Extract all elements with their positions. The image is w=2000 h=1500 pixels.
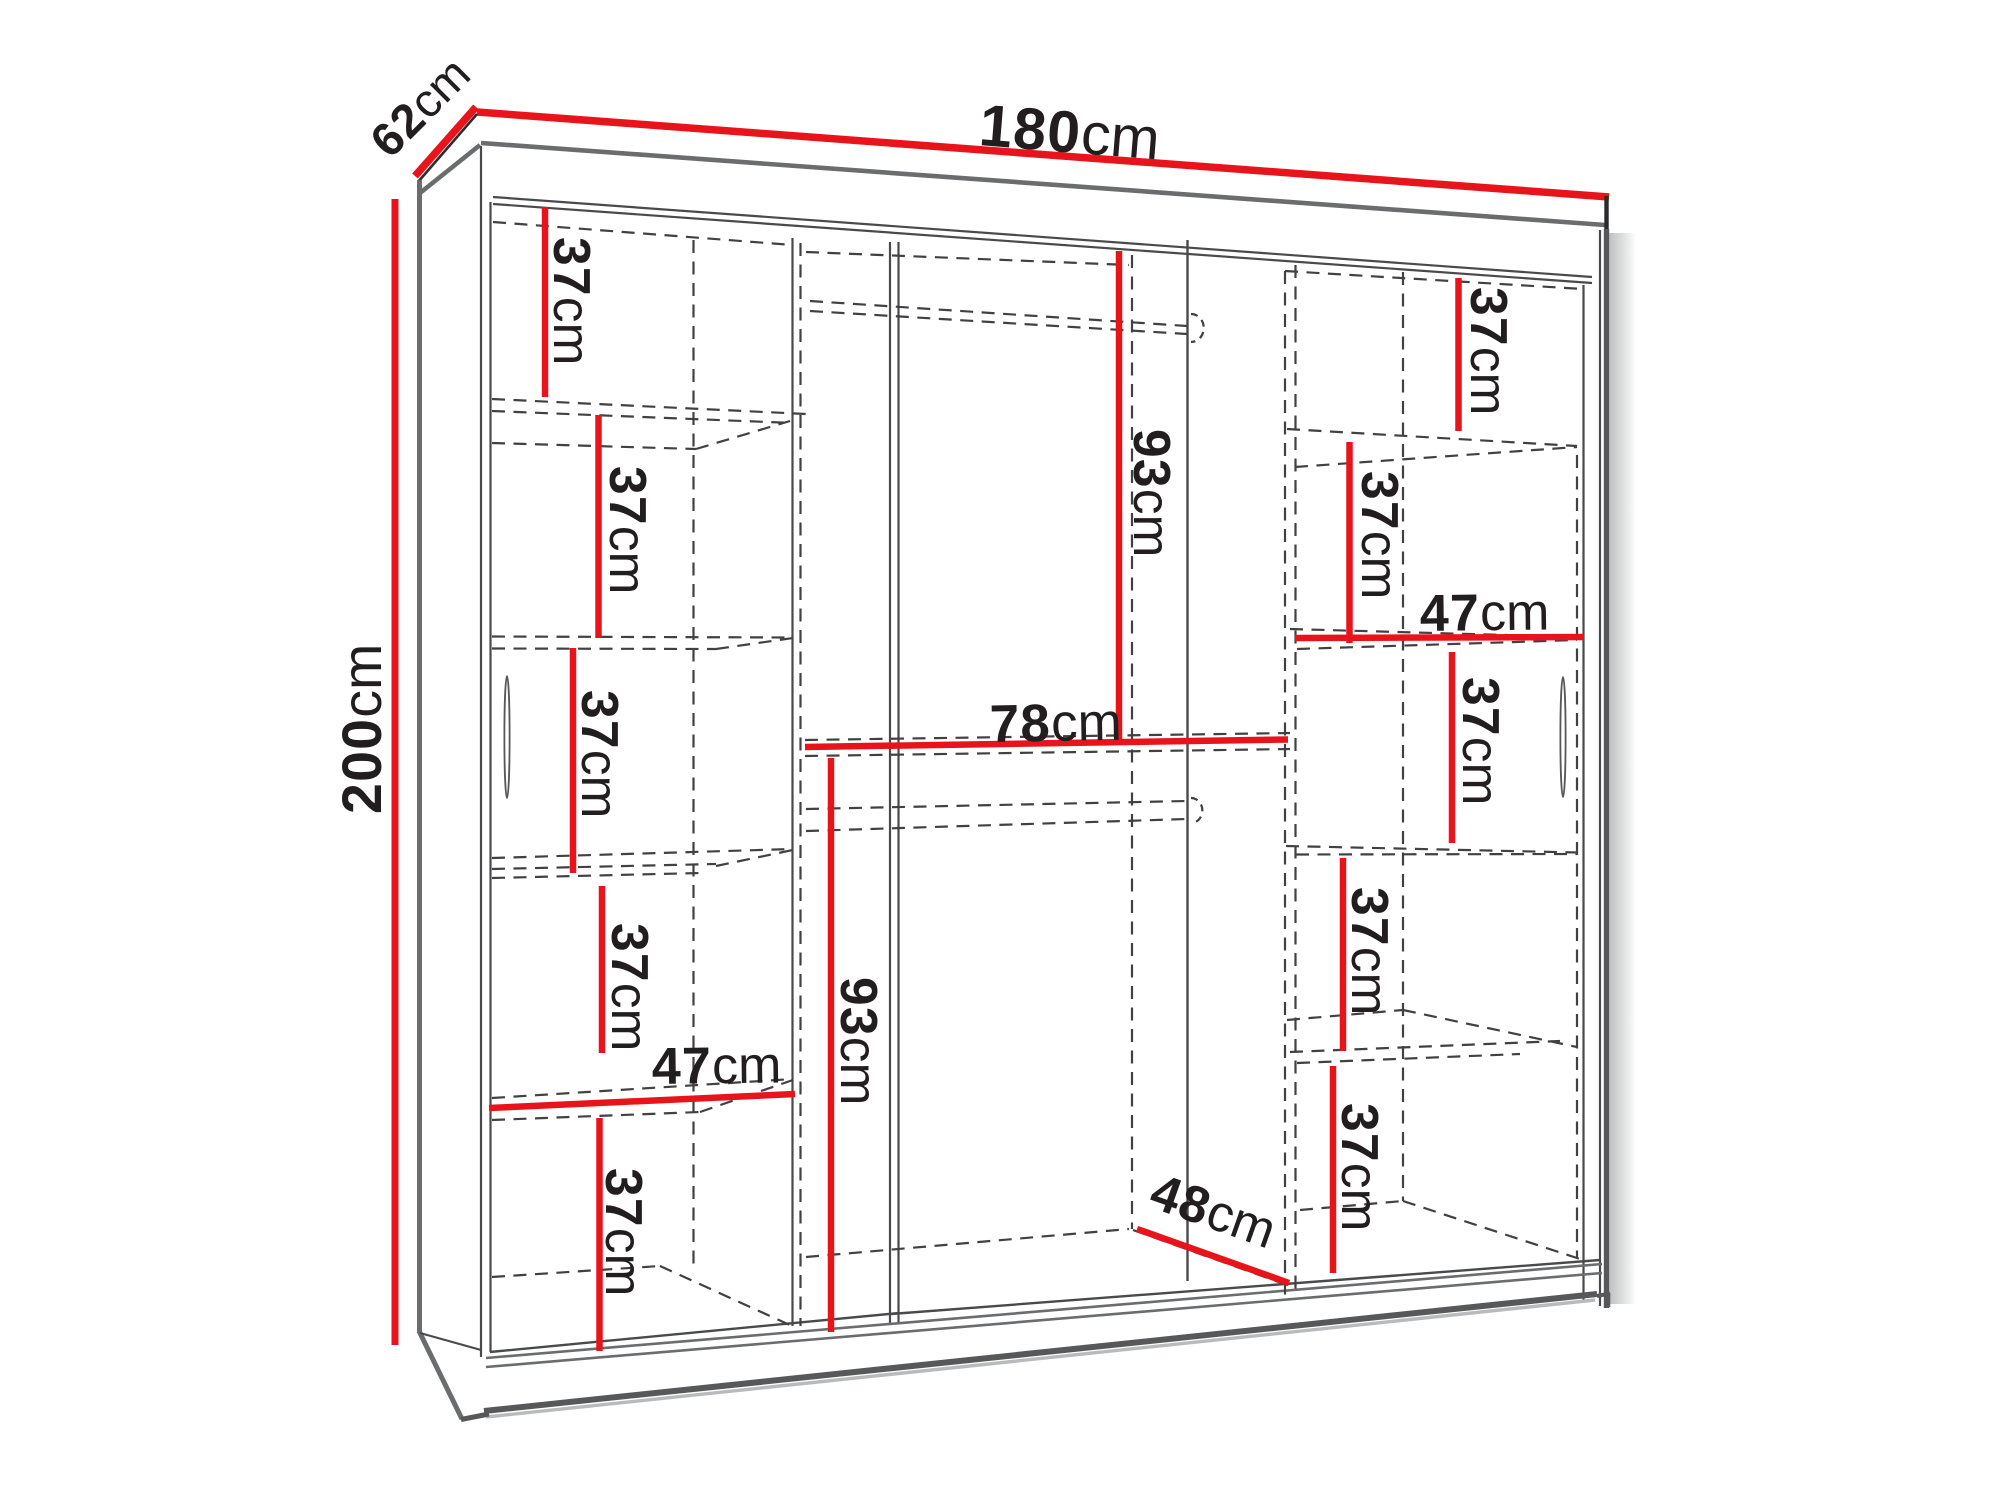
svg-text:37cm: 37cm (601, 923, 659, 1051)
svg-text:93cm: 93cm (830, 977, 888, 1105)
svg-text:37cm: 37cm (543, 237, 601, 365)
svg-text:47cm: 47cm (1419, 583, 1549, 643)
svg-text:93cm: 93cm (1123, 429, 1181, 557)
svg-text:37cm: 37cm (1331, 1103, 1389, 1231)
svg-text:200cm: 200cm (331, 644, 393, 814)
svg-text:37cm: 37cm (1452, 677, 1510, 805)
svg-text:47cm: 47cm (651, 1036, 781, 1096)
svg-text:37cm: 37cm (571, 690, 629, 818)
svg-text:37cm: 37cm (1341, 887, 1399, 1015)
svg-text:78cm: 78cm (989, 693, 1122, 754)
svg-text:37cm: 37cm (595, 1168, 653, 1296)
svg-text:37cm: 37cm (1351, 471, 1409, 599)
svg-text:37cm: 37cm (1460, 287, 1518, 415)
svg-text:37cm: 37cm (599, 466, 657, 594)
